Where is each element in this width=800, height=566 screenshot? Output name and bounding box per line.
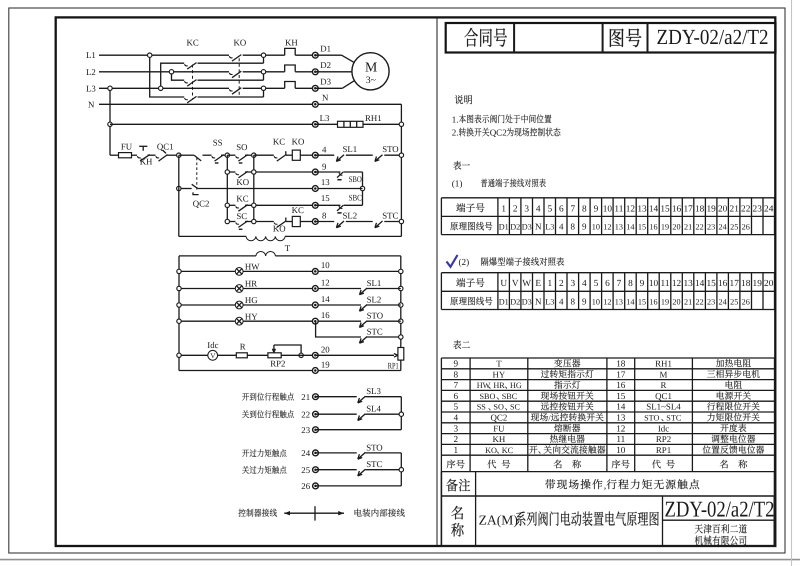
svg-text:KC: KC bbox=[292, 205, 304, 215]
svg-text:25: 25 bbox=[730, 297, 738, 306]
svg-text:4: 4 bbox=[559, 296, 564, 306]
svg-text:4: 4 bbox=[559, 221, 564, 231]
svg-text:STC: STC bbox=[367, 326, 383, 336]
svg-text:8: 8 bbox=[322, 211, 327, 221]
svg-text:6: 6 bbox=[454, 391, 459, 401]
svg-text:SBC: SBC bbox=[502, 392, 518, 401]
svg-text:FU: FU bbox=[493, 423, 505, 433]
svg-text:4: 4 bbox=[454, 413, 459, 423]
svg-text:N: N bbox=[88, 99, 95, 109]
svg-text:9: 9 bbox=[582, 221, 587, 231]
svg-text:3: 3 bbox=[524, 204, 529, 214]
svg-text:D3: D3 bbox=[320, 77, 331, 87]
svg-text:SS: SS bbox=[477, 403, 487, 412]
svg-text:W: W bbox=[522, 279, 531, 289]
svg-text:2.: 2. bbox=[452, 128, 459, 138]
svg-text:R: R bbox=[240, 341, 246, 351]
svg-text:16: 16 bbox=[718, 279, 728, 289]
svg-text:5: 5 bbox=[454, 402, 459, 412]
svg-text:T: T bbox=[496, 359, 502, 369]
svg-text:16: 16 bbox=[321, 310, 330, 320]
svg-text:10: 10 bbox=[616, 445, 626, 455]
svg-text:17: 17 bbox=[730, 279, 740, 289]
svg-text:2: 2 bbox=[513, 204, 518, 214]
svg-text:19: 19 bbox=[706, 204, 716, 214]
svg-text:3: 3 bbox=[570, 279, 575, 289]
svg-text:(1): (1) bbox=[452, 178, 463, 188]
svg-text:STO: STO bbox=[366, 442, 382, 452]
svg-text:D2: D2 bbox=[510, 222, 520, 231]
svg-text:D3: D3 bbox=[522, 297, 532, 306]
svg-text:FU: FU bbox=[121, 142, 133, 152]
svg-text:STO: STO bbox=[367, 311, 383, 321]
svg-text:8: 8 bbox=[628, 279, 633, 289]
svg-text:22: 22 bbox=[301, 409, 310, 419]
svg-text:QC2: QC2 bbox=[491, 413, 508, 423]
svg-text:SBC: SBC bbox=[349, 192, 362, 202]
svg-text:12: 12 bbox=[626, 204, 636, 214]
svg-text:8: 8 bbox=[582, 204, 587, 214]
svg-text:3~: 3~ bbox=[366, 75, 377, 86]
svg-text:20: 20 bbox=[672, 222, 680, 231]
svg-text:KO: KO bbox=[485, 446, 497, 455]
svg-text:26: 26 bbox=[301, 481, 310, 491]
svg-text:KO: KO bbox=[236, 177, 249, 187]
svg-text:9: 9 bbox=[454, 359, 459, 369]
svg-text:13: 13 bbox=[683, 279, 693, 289]
svg-text:RH1: RH1 bbox=[365, 113, 382, 123]
svg-text:23: 23 bbox=[707, 297, 715, 306]
svg-text:SL1: SL1 bbox=[343, 144, 358, 154]
svg-text:,: , bbox=[604, 480, 607, 491]
svg-text:KO: KO bbox=[234, 37, 247, 47]
svg-text:14: 14 bbox=[626, 222, 634, 231]
svg-text:17: 17 bbox=[616, 369, 626, 379]
svg-text:7: 7 bbox=[454, 380, 459, 390]
svg-text:9: 9 bbox=[594, 204, 599, 214]
svg-text:12: 12 bbox=[616, 423, 626, 433]
svg-text:RP1: RP1 bbox=[656, 445, 671, 455]
svg-text:1: 1 bbox=[454, 445, 459, 455]
svg-text:5: 5 bbox=[547, 204, 552, 214]
svg-text:20: 20 bbox=[321, 344, 330, 354]
svg-text:SL1~SL4: SL1~SL4 bbox=[646, 402, 681, 412]
svg-text:12: 12 bbox=[603, 297, 611, 306]
svg-text:SBO: SBO bbox=[480, 392, 496, 401]
svg-text:23: 23 bbox=[301, 425, 310, 435]
svg-text:21: 21 bbox=[301, 392, 310, 402]
svg-text:9: 9 bbox=[640, 279, 645, 289]
svg-text:4: 4 bbox=[322, 144, 327, 154]
svg-text:SL2: SL2 bbox=[367, 294, 382, 304]
svg-text:4: 4 bbox=[582, 279, 587, 289]
svg-text:D2: D2 bbox=[510, 297, 520, 306]
svg-text:18: 18 bbox=[695, 204, 705, 214]
svg-text:U: U bbox=[500, 279, 507, 289]
svg-text:24: 24 bbox=[301, 448, 310, 458]
svg-text:N: N bbox=[535, 296, 542, 306]
svg-text:KC: KC bbox=[236, 194, 248, 204]
svg-text:RH1: RH1 bbox=[655, 359, 672, 369]
svg-text:15: 15 bbox=[321, 193, 330, 203]
svg-text:STC: STC bbox=[366, 459, 382, 469]
svg-text:4: 4 bbox=[536, 204, 541, 214]
svg-text:17: 17 bbox=[683, 204, 693, 214]
svg-text:HG: HG bbox=[245, 295, 258, 305]
svg-text:10: 10 bbox=[592, 222, 600, 231]
svg-text:ZDY-02/a2/T2: ZDY-02/a2/T2 bbox=[657, 25, 769, 49]
svg-text:6: 6 bbox=[605, 279, 610, 289]
svg-text:3: 3 bbox=[454, 423, 459, 433]
svg-text:14: 14 bbox=[321, 294, 330, 304]
svg-text:SS: SS bbox=[213, 137, 223, 147]
svg-text:ZA(M): ZA(M) bbox=[479, 513, 518, 528]
svg-text:10: 10 bbox=[321, 260, 330, 270]
svg-text:9: 9 bbox=[322, 161, 327, 171]
svg-text:RP2: RP2 bbox=[270, 358, 285, 368]
svg-text:22: 22 bbox=[696, 222, 704, 231]
svg-text:D1: D1 bbox=[499, 222, 509, 231]
svg-text:10: 10 bbox=[649, 279, 659, 289]
svg-text:STO: STO bbox=[644, 414, 659, 423]
svg-text:14: 14 bbox=[649, 204, 659, 214]
svg-text:13: 13 bbox=[615, 297, 623, 306]
svg-text:KO: KO bbox=[292, 137, 305, 147]
svg-text:STC: STC bbox=[382, 210, 398, 220]
svg-text:E: E bbox=[535, 279, 541, 289]
svg-text:KC: KC bbox=[273, 137, 285, 147]
svg-text:QC1: QC1 bbox=[157, 142, 174, 152]
svg-text:16: 16 bbox=[672, 204, 682, 214]
svg-text:2: 2 bbox=[559, 279, 564, 289]
svg-text:13: 13 bbox=[321, 177, 330, 187]
svg-text:QC1: QC1 bbox=[655, 391, 672, 401]
svg-text:26: 26 bbox=[742, 297, 750, 306]
svg-text:12: 12 bbox=[603, 222, 611, 231]
svg-text:KO: KO bbox=[273, 223, 286, 233]
svg-text:20: 20 bbox=[718, 204, 728, 214]
svg-text:ZDY-02/a2/T2: ZDY-02/a2/T2 bbox=[665, 497, 775, 522]
svg-text:SC: SC bbox=[236, 211, 247, 221]
svg-text:5: 5 bbox=[594, 279, 599, 289]
svg-text:KC: KC bbox=[187, 37, 199, 47]
svg-text:D1: D1 bbox=[320, 44, 331, 54]
svg-text:8: 8 bbox=[454, 369, 459, 379]
svg-text:22: 22 bbox=[696, 297, 704, 306]
svg-text:1: 1 bbox=[547, 279, 552, 289]
svg-text:19: 19 bbox=[321, 359, 330, 369]
svg-text:8: 8 bbox=[571, 296, 576, 306]
svg-text:21: 21 bbox=[684, 297, 692, 306]
svg-text:14: 14 bbox=[616, 402, 626, 412]
svg-text:15: 15 bbox=[638, 297, 646, 306]
svg-text:24: 24 bbox=[719, 297, 727, 306]
svg-text:STC: STC bbox=[666, 414, 682, 423]
svg-text:SO: SO bbox=[236, 142, 247, 152]
svg-text:L3: L3 bbox=[86, 83, 96, 93]
svg-text:HY: HY bbox=[245, 311, 258, 321]
svg-text:19: 19 bbox=[753, 279, 763, 289]
svg-text:KH: KH bbox=[285, 37, 298, 47]
svg-text:SBO: SBO bbox=[349, 174, 362, 184]
svg-text:24: 24 bbox=[719, 222, 727, 231]
svg-text:SL3: SL3 bbox=[366, 386, 381, 396]
svg-text:RP2: RP2 bbox=[656, 434, 671, 444]
svg-text:6: 6 bbox=[559, 204, 564, 214]
svg-text:16: 16 bbox=[616, 380, 626, 390]
svg-text:SO: SO bbox=[493, 403, 504, 412]
svg-text:23: 23 bbox=[707, 222, 715, 231]
svg-text:8: 8 bbox=[571, 221, 576, 231]
svg-text:M: M bbox=[365, 60, 377, 75]
svg-text:9: 9 bbox=[582, 296, 587, 306]
svg-text:11: 11 bbox=[661, 279, 670, 289]
svg-text:18: 18 bbox=[741, 279, 751, 289]
svg-text:KH: KH bbox=[492, 434, 505, 444]
svg-text:QC2: QC2 bbox=[193, 199, 210, 209]
svg-text:25: 25 bbox=[730, 222, 738, 231]
svg-text:19: 19 bbox=[661, 297, 669, 306]
svg-text:L3: L3 bbox=[545, 297, 554, 306]
svg-text:15: 15 bbox=[616, 391, 626, 401]
svg-text:T: T bbox=[285, 243, 291, 253]
svg-text:2: 2 bbox=[454, 434, 459, 444]
svg-text:HW: HW bbox=[245, 262, 260, 272]
svg-text:L1: L1 bbox=[86, 50, 96, 60]
svg-text:M: M bbox=[660, 369, 668, 379]
svg-text:18: 18 bbox=[616, 359, 626, 369]
svg-text:L3: L3 bbox=[545, 222, 554, 231]
svg-text:26: 26 bbox=[742, 222, 750, 231]
svg-text:25: 25 bbox=[301, 465, 310, 475]
svg-text:12: 12 bbox=[321, 277, 330, 287]
svg-text:HG: HG bbox=[510, 381, 522, 390]
svg-text:10: 10 bbox=[603, 204, 613, 214]
svg-text:SC: SC bbox=[510, 403, 521, 412]
svg-text:Idc: Idc bbox=[658, 423, 669, 433]
svg-text:13: 13 bbox=[637, 204, 647, 214]
svg-text:21: 21 bbox=[730, 204, 740, 214]
svg-text:STO: STO bbox=[382, 144, 398, 154]
svg-text:1: 1 bbox=[501, 204, 506, 214]
svg-text:HY: HY bbox=[492, 369, 505, 379]
svg-text:7: 7 bbox=[617, 279, 622, 289]
svg-text:11: 11 bbox=[616, 434, 625, 444]
svg-text:V: V bbox=[210, 352, 215, 360]
svg-text:Idc: Idc bbox=[207, 340, 218, 350]
svg-text:13: 13 bbox=[615, 222, 623, 231]
svg-text:16: 16 bbox=[649, 297, 657, 306]
svg-text:13: 13 bbox=[616, 413, 626, 423]
svg-text:22: 22 bbox=[741, 204, 751, 214]
svg-text:QC2: QC2 bbox=[490, 128, 507, 138]
svg-text:L2: L2 bbox=[86, 67, 96, 77]
svg-text:SL1: SL1 bbox=[367, 278, 382, 288]
svg-text:15: 15 bbox=[706, 279, 716, 289]
svg-text:20: 20 bbox=[672, 297, 680, 306]
svg-text:15: 15 bbox=[660, 204, 670, 214]
svg-text:D2: D2 bbox=[320, 60, 331, 70]
svg-text:24: 24 bbox=[764, 204, 774, 214]
svg-text:RP1: RP1 bbox=[388, 360, 399, 370]
svg-text:(2): (2) bbox=[459, 257, 470, 267]
svg-text:N: N bbox=[322, 93, 329, 103]
svg-text:20: 20 bbox=[764, 279, 774, 289]
svg-text:1.: 1. bbox=[452, 114, 459, 124]
svg-text:16: 16 bbox=[649, 222, 657, 231]
svg-text:KC: KC bbox=[502, 446, 514, 455]
svg-text:15: 15 bbox=[638, 222, 646, 231]
svg-text:14: 14 bbox=[626, 297, 634, 306]
svg-text:D1: D1 bbox=[499, 297, 509, 306]
svg-text:SL4: SL4 bbox=[366, 404, 381, 414]
svg-text:KH: KH bbox=[140, 157, 153, 167]
svg-text:23: 23 bbox=[753, 204, 763, 214]
svg-text:12: 12 bbox=[672, 279, 682, 289]
svg-text:19: 19 bbox=[661, 222, 669, 231]
svg-text:10: 10 bbox=[592, 297, 600, 306]
svg-text:V: V bbox=[512, 279, 519, 289]
svg-text:SL2: SL2 bbox=[343, 210, 358, 220]
svg-text:14: 14 bbox=[695, 279, 705, 289]
svg-text:HR: HR bbox=[245, 279, 257, 289]
svg-text:HR: HR bbox=[493, 381, 505, 390]
svg-text:7: 7 bbox=[570, 204, 575, 214]
svg-text:N: N bbox=[535, 221, 542, 231]
svg-text:L3: L3 bbox=[320, 113, 330, 123]
svg-text:D3: D3 bbox=[522, 222, 532, 231]
svg-text:R: R bbox=[661, 380, 667, 390]
svg-text:21: 21 bbox=[684, 222, 692, 231]
svg-text:11: 11 bbox=[614, 204, 623, 214]
svg-text:HW: HW bbox=[477, 381, 491, 390]
